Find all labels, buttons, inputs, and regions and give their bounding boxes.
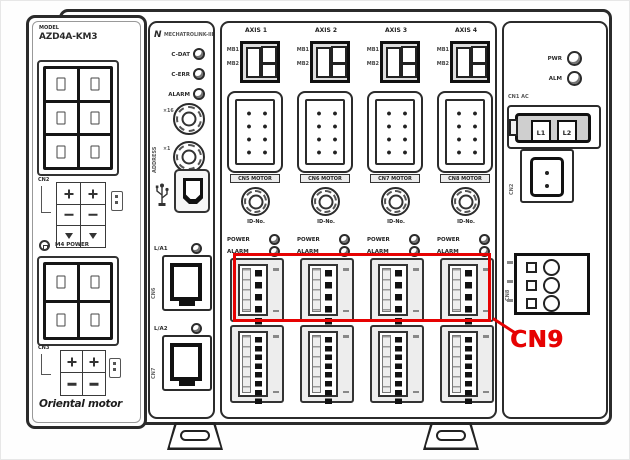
brand-logo: Oriental motor — [39, 398, 122, 410]
motor-connector — [367, 91, 423, 173]
pin-dot — [545, 171, 549, 175]
display-cell — [46, 265, 77, 300]
display-cell — [80, 69, 111, 100]
foot-slot — [180, 430, 210, 441]
terminal-pins — [325, 337, 332, 405]
dc-power-terminal-connector — [514, 253, 590, 315]
left-power-module: MODEL AZD4A-KM3 CN2 M4 POWER CN3 — [26, 15, 147, 429]
cn8-connector-label: CN8 — [506, 267, 511, 301]
cn3-bracket — [41, 354, 51, 375]
pin-mark — [273, 391, 279, 394]
motor-connector — [227, 91, 283, 173]
terminal-square — [526, 262, 537, 273]
mounting-foot-left — [167, 422, 223, 450]
cdat-led — [193, 48, 205, 60]
ac-connector-latch — [509, 119, 518, 136]
address-rotary-switch-x16 — [173, 103, 205, 135]
ethernet-port-1 — [162, 255, 212, 311]
terminal-key-cluster-lower — [61, 351, 105, 395]
terminal-pins — [255, 337, 262, 405]
display-cell — [80, 265, 111, 300]
brake-terminal-label: MB2 — [361, 61, 379, 67]
led-label-cerr: C-ERR — [152, 73, 190, 79]
dc-power-plug-icon — [111, 191, 123, 211]
id-rotary-switch — [241, 187, 270, 216]
axis-label: AXIS 1 — [225, 27, 287, 34]
power-led — [479, 234, 490, 245]
pin-dot — [545, 184, 549, 188]
alm-led — [567, 71, 582, 86]
plus-key-icon — [82, 350, 106, 374]
motor-connector — [437, 91, 493, 173]
motor-connector-label: CN5 MOTOR — [230, 174, 280, 183]
cn9-highlight-box — [233, 253, 491, 322]
motor-connector-label: CN7 MOTOR — [370, 174, 420, 183]
id-switch-label: ID-No. — [295, 219, 357, 225]
foot-slot — [436, 430, 466, 441]
axis-label: AXIS 3 — [365, 27, 427, 34]
id-rotary-switch — [311, 187, 340, 216]
led-label-alarm: ALARM — [152, 93, 190, 99]
rj45-latch — [179, 380, 195, 386]
switch-mark-x1: ×1 — [163, 147, 170, 152]
cn2-label: CN2 — [38, 178, 49, 183]
connector-door — [456, 47, 471, 78]
pwr-led — [567, 51, 582, 66]
terminal-round — [543, 259, 560, 276]
id-switch-label: ID-No. — [435, 219, 497, 225]
terminal-square — [526, 298, 537, 309]
display-cell — [46, 136, 77, 167]
axis-column-1: AXIS 1 MB1 MB2 CN5 MOTOR ID-No. POWER AL… — [225, 21, 287, 419]
brake-connector — [380, 41, 420, 83]
rj45-latch — [179, 300, 195, 306]
motor-connector-label: CN6 MOTOR — [300, 174, 350, 183]
display-grid-lower — [43, 262, 113, 340]
rj45-jack — [170, 343, 202, 381]
pin-mark — [507, 280, 513, 283]
terminal-square — [526, 280, 537, 291]
lan1-cn-label: CN6 — [152, 269, 157, 299]
brake-terminal-label: MB2 — [431, 61, 449, 67]
pin-grid — [451, 107, 483, 163]
cn2-connector-inner — [530, 157, 564, 197]
pin-mark — [343, 335, 349, 338]
terminal-round — [543, 295, 560, 312]
connector-door — [246, 47, 261, 78]
pin-mark — [413, 335, 419, 338]
connector-door — [316, 47, 331, 78]
usb-connector — [174, 169, 210, 213]
terminal-pins — [395, 337, 402, 405]
connector-door — [386, 47, 401, 78]
ac-connector-shell: L1 L2 — [515, 113, 591, 143]
axis-column-3: AXIS 3 MB1 MB2 CN7 MOTOR ID-No. POWER AL… — [365, 21, 427, 419]
pin-mark — [507, 261, 513, 264]
cerr-led — [193, 68, 205, 80]
terminal-connector — [238, 331, 268, 397]
axis-label: AXIS 2 — [295, 27, 357, 34]
usb-icon — [155, 183, 169, 207]
power-led — [339, 234, 350, 245]
brake-terminal-label: MB2 — [291, 61, 309, 67]
axis-label: AXIS 4 — [435, 27, 497, 34]
pin-grid — [241, 107, 273, 163]
minus-key-icon — [60, 372, 84, 396]
brake-terminal-label: MB1 — [291, 47, 309, 53]
axis-column-4: AXIS 4 MB1 MB2 CN8 MOTOR ID-No. POWER AL… — [435, 21, 497, 419]
comm-panel: N MECHATROLINK-III C-DAT C-ERR ALARM ADD… — [148, 21, 215, 419]
lan1-led-label: L/A1 — [154, 247, 168, 253]
plus-key-icon — [80, 182, 106, 205]
terminal-connector — [378, 331, 408, 397]
display-cell — [80, 136, 111, 167]
pin-mark — [273, 335, 279, 338]
pin-mark — [413, 391, 419, 394]
display-cell — [80, 103, 111, 134]
alm-led-label: ALM — [526, 77, 562, 83]
power-led-label: POWER — [297, 237, 320, 243]
power-led-label: POWER — [367, 237, 390, 243]
cn2-bracket — [41, 186, 51, 213]
pwr-led-label: PWR — [526, 57, 562, 63]
id-rotary-switch — [381, 187, 410, 216]
terminal-pins — [465, 337, 472, 405]
connector-cell — [261, 63, 277, 78]
ground-label: M4 POWER — [55, 243, 89, 249]
mechatrolink-logo-icon: N — [154, 30, 162, 40]
brake-connector — [310, 41, 350, 83]
terminal-connector — [448, 331, 478, 397]
ac-terminal-l2: L2 — [557, 120, 577, 142]
connector-cell — [331, 46, 347, 64]
display-block-upper — [37, 60, 119, 176]
ground-icon — [39, 240, 50, 251]
terminal-round — [543, 277, 560, 294]
pin-grid — [311, 107, 343, 163]
brake-terminal-label: MB1 — [361, 47, 379, 53]
io-terminal-block-lower — [440, 325, 494, 403]
minus-key-icon — [56, 204, 82, 227]
io-terminal-block-lower — [230, 325, 284, 403]
connector-cell — [471, 46, 487, 64]
connector-cell — [471, 63, 487, 78]
terminal-levers — [382, 335, 391, 393]
terminal-levers — [452, 335, 461, 393]
device-diagram: MODEL AZD4A-KM3 CN2 M4 POWER CN3 — [0, 0, 630, 460]
terminal-connector — [308, 331, 338, 397]
axis-column-2: AXIS 2 MB1 MB2 CN6 MOTOR ID-No. POWER AL… — [295, 21, 357, 419]
lan2-led — [191, 323, 202, 334]
connector-cell — [401, 46, 417, 64]
plus-key-icon — [56, 182, 82, 205]
id-rotary-switch — [451, 187, 480, 216]
switch-mark-x16: ×16 — [163, 109, 174, 114]
right-power-panel: PWR ALM CN1 AC L1 L2 CN2 CN8 — [502, 21, 608, 419]
cn2-connector-label: CN2 — [510, 161, 515, 195]
rj45-jack — [170, 263, 202, 301]
brake-terminal-label: MB2 — [221, 61, 239, 67]
cn3-label: CN3 — [38, 346, 49, 351]
lan1-led — [191, 243, 202, 254]
cn9-annotation-label: CN9 — [510, 327, 564, 353]
connector-cell — [331, 63, 347, 78]
pin-mark — [507, 299, 513, 302]
ac-terminal-l1: L1 — [531, 120, 551, 142]
power-led — [269, 234, 280, 245]
plus-key-icon — [60, 350, 84, 374]
terminal-levers — [312, 335, 321, 393]
pin-mark — [343, 391, 349, 394]
id-switch-label: ID-No. — [225, 219, 287, 225]
motor-connector-label: CN8 MOTOR — [440, 174, 490, 183]
power-led — [409, 234, 420, 245]
pin-mark — [483, 391, 489, 394]
mounting-foot-right — [423, 422, 479, 450]
display-cell — [46, 303, 77, 338]
dc-power-plug-icon — [109, 358, 121, 378]
pin-grid — [381, 107, 413, 163]
mechatrolink-logo-text: MECHATROLINK-III — [164, 33, 213, 38]
ac-power-connector: L1 L2 — [507, 105, 601, 149]
connector-cell — [401, 63, 417, 78]
minus-key-icon — [82, 372, 106, 396]
id-switch-label: ID-No. — [365, 219, 427, 225]
address-switch-label: ADDRESS — [153, 107, 158, 173]
model-number: AZD4A-KM3 — [39, 32, 97, 42]
motor-connector — [297, 91, 353, 173]
ac-connector-label: CN1 AC — [508, 95, 529, 100]
lan2-led-label: L/A2 — [154, 327, 168, 333]
terminal-key-cluster-upper — [57, 183, 105, 247]
display-cell — [46, 103, 77, 134]
display-cell — [80, 303, 111, 338]
ethernet-port-2 — [162, 335, 212, 391]
terminal-levers — [242, 335, 251, 393]
connector-cell — [261, 46, 277, 64]
display-cell — [46, 69, 77, 100]
usb-port-inner — [186, 181, 200, 199]
brake-terminal-label: MB1 — [431, 47, 449, 53]
display-block-lower — [37, 256, 119, 346]
brake-connector — [450, 41, 490, 83]
io-terminal-block-lower — [300, 325, 354, 403]
led-label-cdat: C-DAT — [152, 53, 190, 59]
display-grid-upper — [43, 66, 113, 170]
minus-key-icon — [80, 204, 106, 227]
power-led-label: POWER — [437, 237, 460, 243]
brake-terminal-label: MB1 — [221, 47, 239, 53]
lan2-cn-label: CN7 — [152, 349, 157, 379]
model-label: MODEL — [39, 26, 59, 31]
comm-alarm-led — [193, 88, 205, 100]
pin-mark — [483, 335, 489, 338]
power-led-label: POWER — [227, 237, 250, 243]
io-terminal-block-lower — [370, 325, 424, 403]
regeneration-connector — [520, 149, 574, 203]
brake-connector — [240, 41, 280, 83]
